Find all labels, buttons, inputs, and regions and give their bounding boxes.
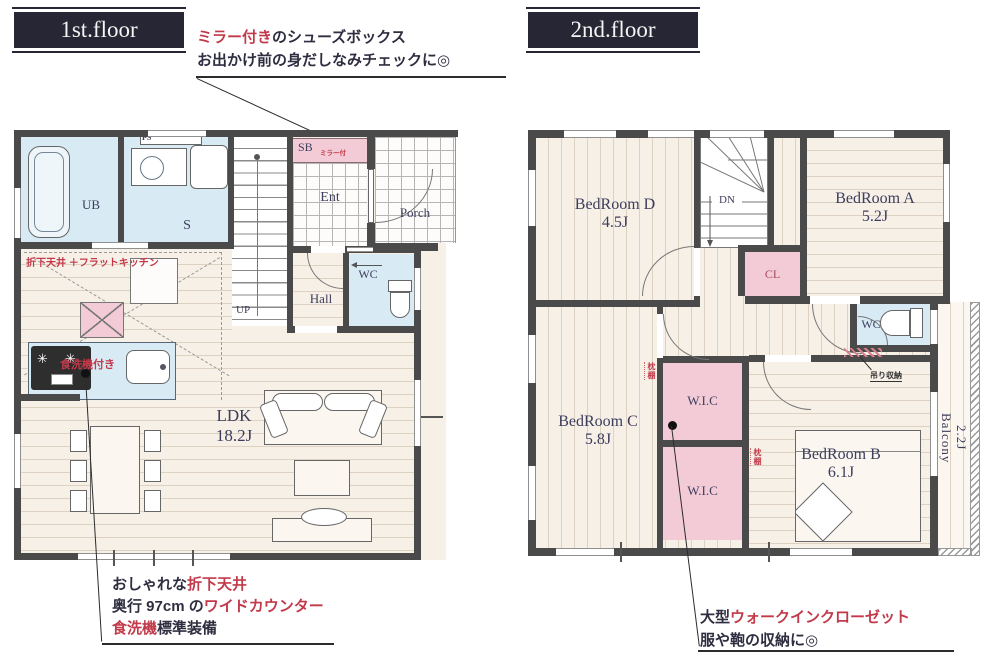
balcony-rail (938, 548, 972, 556)
wc-label-1f: WC (353, 268, 383, 282)
balcony-name: Balcony (938, 368, 953, 508)
bedroom-d-size: 4.5J (550, 214, 680, 232)
bedroom-c-label: BedRoom C 5.8J (538, 413, 658, 450)
storage-note: 吊り収納 (870, 370, 902, 382)
toilet-bowl-1f (390, 292, 410, 318)
hall-label: Hall (298, 292, 344, 307)
sliding-door-wc (347, 247, 373, 252)
annotation-wic-underline (698, 650, 954, 652)
stairs-2f (700, 136, 768, 248)
dimension-tick (192, 550, 194, 566)
s-label: S (172, 218, 202, 234)
shelf-note-upper: 枕棚 (644, 362, 657, 380)
kitchen-sink (126, 350, 170, 384)
dimension-tick (421, 416, 443, 418)
laundry-pan (190, 145, 228, 189)
ldk-size: 18.2J (176, 426, 292, 446)
wall (742, 356, 749, 548)
chair (70, 430, 87, 452)
floor1-title: 1st.floor (14, 12, 184, 48)
annotation-shoebox-underline (196, 76, 506, 78)
floor1-plan: PS ✳ ✳ 食洗機付き 折下天井 ＋フラットキッチン (14, 130, 460, 562)
annotation-kitchen-line1: おしゃれな折下天井 (112, 574, 324, 596)
doorway-gap (657, 314, 663, 358)
chair (70, 490, 87, 512)
bedroom-b-size: 6.1J (776, 464, 906, 482)
toilet-tank-2f (910, 308, 923, 338)
grill-door (51, 374, 73, 385)
window (790, 548, 852, 556)
chair (144, 490, 161, 512)
wall (768, 137, 774, 249)
window (528, 170, 536, 226)
doorway-gap (311, 246, 345, 253)
balcony-size: 2.2J (953, 368, 968, 508)
window (528, 335, 536, 383)
doorway-gap (810, 296, 860, 304)
window (834, 130, 894, 138)
balcony-sliding-door (930, 392, 938, 476)
floor2-plan: Balcony 2.2J DN (528, 130, 988, 562)
dimension-tick (620, 542, 622, 562)
bedroom-d-name: BedRoom D (550, 196, 680, 214)
faucet (160, 364, 166, 370)
window (943, 164, 950, 222)
porch-label: Porch (375, 206, 455, 221)
floor2-title: 2nd.floor (528, 12, 698, 48)
wall (14, 130, 458, 137)
ent-label: Ent (300, 190, 360, 206)
wall (287, 137, 293, 326)
coffee-table (294, 460, 350, 496)
wall (228, 137, 234, 249)
window (528, 466, 536, 520)
wic-lower-label: W.I.C (663, 484, 742, 499)
ceiling-dash-right (221, 252, 222, 400)
window (414, 268, 421, 310)
wall (738, 245, 807, 252)
annotation-wic-line1: 大型ウォークインクローゼット (700, 606, 910, 629)
annotation-wic-line2: 服や鞄の収納に◎ (700, 629, 910, 652)
chair (144, 460, 161, 482)
front-door-leaf (368, 169, 374, 223)
window (148, 130, 206, 137)
window (648, 130, 694, 138)
wall (738, 252, 745, 296)
bedroom-b-name: BedRoom B (776, 446, 906, 464)
window (556, 548, 614, 556)
window (14, 434, 21, 488)
dining-table (90, 426, 140, 514)
ldk-label: LDK 18.2J (176, 406, 292, 445)
window (14, 188, 21, 238)
dn-label: DN (712, 194, 742, 207)
tv (301, 508, 347, 526)
window (564, 130, 616, 138)
ceiling-note: 折下天井 ＋フラットキッチン (26, 254, 159, 269)
bedroom-a-name: BedRoom A (809, 190, 941, 208)
wall (118, 137, 124, 249)
wc-label-2f: WC (858, 318, 884, 332)
bedroom-c-size: 5.8J (538, 431, 658, 449)
ub-label: UB (76, 198, 106, 213)
sliding-door-washroom (92, 242, 148, 249)
stairs-rail-dot (254, 154, 260, 160)
doorway-gap (694, 248, 700, 296)
bedroom-c-name: BedRoom C (538, 413, 658, 431)
ldk-name: LDK (176, 406, 292, 426)
wall (343, 253, 349, 326)
stairs-2f-drawing (700, 136, 768, 248)
wall (367, 137, 375, 169)
hanging-cabinet-hatch (844, 348, 882, 357)
wic-upper-label: W.I.C (663, 394, 742, 409)
washbasin-bowl (140, 156, 164, 180)
annotation-kitchen: おしゃれな折下天井 奥行 97cm のワイドカウンター 食洗機標準装備 (112, 574, 324, 640)
stairs-rail (257, 158, 258, 316)
doorway-gap (765, 355, 811, 362)
bedroom-a-size: 5.2J (809, 208, 941, 226)
chair (144, 430, 161, 452)
wall (14, 394, 80, 401)
wall (370, 243, 438, 251)
doorway-gap (295, 326, 337, 333)
annotation-shoebox-line2: お出かけ前の身だしなみチェックに◎ (197, 49, 450, 72)
wall (528, 300, 700, 307)
annotation-kitchen-underline (102, 643, 334, 645)
shelf-note-lower: 枕棚 (750, 448, 763, 466)
up-label: UP (236, 304, 250, 317)
floorplan-page: { "colors": { "wall": "#4a4a4a", "accent… (0, 0, 1000, 658)
cl-label: CL (745, 268, 800, 282)
bathtub-inner (34, 152, 64, 232)
window (414, 380, 421, 446)
annotation-kitchen-line3: 食洗機標準装備 (112, 618, 324, 640)
pantry-xbox (80, 302, 124, 338)
dimension-tick (153, 550, 155, 566)
annotation-kitchen-line2: 奥行 97cm のワイドカウンター (112, 596, 324, 618)
dimension-tick (768, 542, 770, 562)
bed-pillow (795, 482, 853, 541)
toilet-tank-1f (388, 280, 412, 292)
annotation-shoebox-line1: ミラー付きのシューズボックス (197, 26, 450, 49)
bedroom-b-label: BedRoom B 6.1J (776, 446, 906, 483)
door-swing-arrow (356, 265, 382, 266)
window (710, 130, 764, 138)
sb-mirror-note: ミラー付 (320, 147, 346, 157)
dimension-tick (113, 550, 115, 566)
bathtub (28, 146, 70, 238)
bedroom-a-label: BedRoom A 5.2J (809, 190, 941, 227)
chair (70, 460, 87, 482)
wall (800, 137, 807, 297)
bedroom-d-label: BedRoom D 4.5J (550, 196, 680, 233)
window (930, 310, 938, 344)
annotation-shoebox: ミラー付きのシューズボックス お出かけ前の身だしなみチェックに◎ (197, 26, 450, 72)
annotation-wic: 大型ウォークインクローゼット 服や鞄の収納に◎ (700, 606, 910, 652)
ceiling-dash-top (24, 252, 222, 253)
balcony-label: Balcony 2.2J (938, 368, 972, 508)
leader-dot-wic (668, 421, 677, 430)
burner-icon: ✳ (37, 352, 48, 365)
stairs-1f (232, 137, 288, 326)
sb-label: SB (298, 141, 313, 155)
washbasin (131, 148, 187, 186)
